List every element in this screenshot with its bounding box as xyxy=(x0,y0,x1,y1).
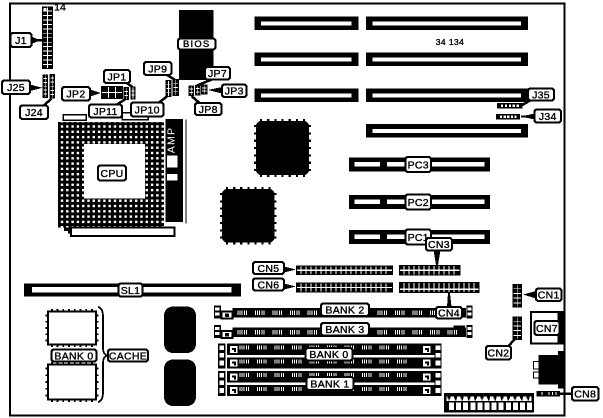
svg-text:JP8: JP8 xyxy=(199,104,218,116)
svg-text:BANK 0: BANK 0 xyxy=(309,349,348,361)
svg-text:JP1: JP1 xyxy=(108,71,127,83)
svg-text:BIOS: BIOS xyxy=(183,39,211,50)
svg-text:J34: J34 xyxy=(539,111,557,123)
svg-text:34 134: 34 134 xyxy=(436,37,464,47)
svg-text:SL1: SL1 xyxy=(121,285,141,297)
svg-text:J35: J35 xyxy=(532,89,550,101)
svg-text:J1: J1 xyxy=(15,35,27,47)
svg-text:BANK 1: BANK 1 xyxy=(310,378,349,390)
svg-text:CN7: CN7 xyxy=(536,323,558,335)
svg-text:BANK 0: BANK 0 xyxy=(54,350,93,362)
svg-text:CPU: CPU xyxy=(100,168,123,180)
svg-text:J24: J24 xyxy=(25,107,43,119)
svg-text:CN1: CN1 xyxy=(538,290,560,302)
svg-text:CN3: CN3 xyxy=(428,239,450,251)
svg-text:CACHE: CACHE xyxy=(109,350,147,362)
svg-text:JP9: JP9 xyxy=(148,63,167,75)
svg-text:JP3: JP3 xyxy=(225,86,244,98)
svg-text:J25: J25 xyxy=(7,82,25,94)
svg-text:BANK 3: BANK 3 xyxy=(325,324,364,336)
svg-text:AMP: AMP xyxy=(166,127,178,153)
svg-text:CN5: CN5 xyxy=(258,263,280,275)
svg-text:CN6: CN6 xyxy=(258,279,280,291)
svg-text:BANK 2: BANK 2 xyxy=(325,305,364,317)
svg-text:PC2: PC2 xyxy=(408,197,429,209)
svg-text:JP11: JP11 xyxy=(93,106,117,118)
svg-text:CN2: CN2 xyxy=(488,348,510,360)
svg-text:CN8: CN8 xyxy=(574,389,596,401)
svg-text:JP2: JP2 xyxy=(67,89,86,101)
svg-text:CN4: CN4 xyxy=(438,308,460,320)
svg-text:PC3: PC3 xyxy=(408,159,429,171)
svg-text:JP10: JP10 xyxy=(135,104,160,116)
svg-text:JP7: JP7 xyxy=(208,68,227,80)
svg-text:14: 14 xyxy=(54,2,66,14)
